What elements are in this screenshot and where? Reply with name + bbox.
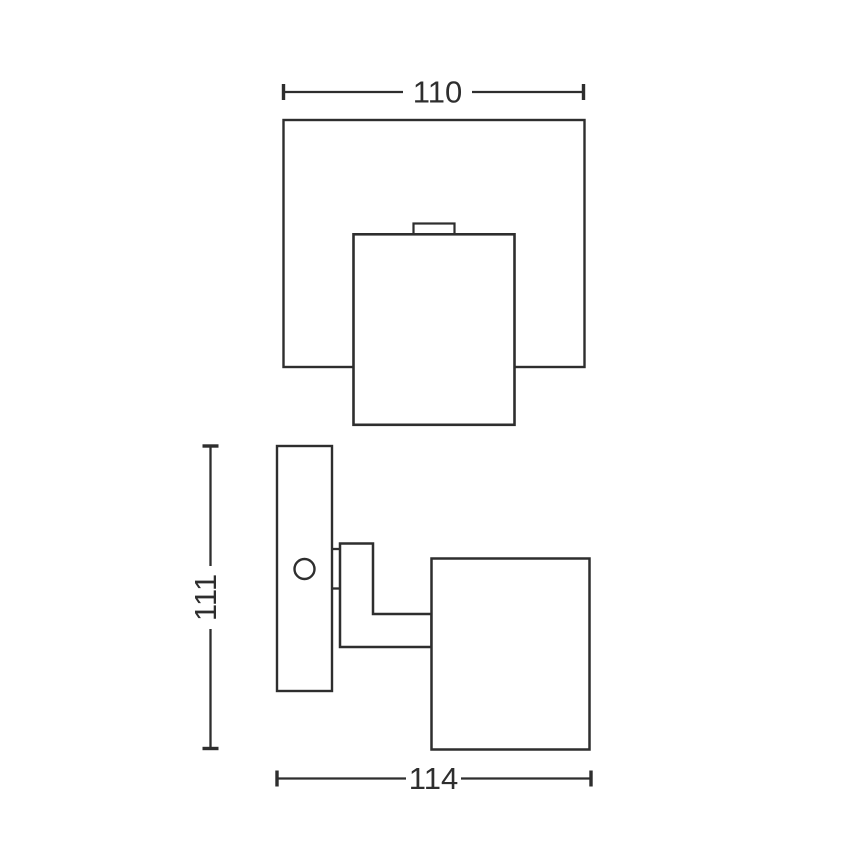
technical-drawing: 110 111 — [0, 0, 868, 868]
dimension-label-depth: 114 — [409, 761, 458, 796]
dimension-label-width: 110 — [413, 75, 462, 110]
top-view: 110 — [284, 75, 585, 425]
side-view-lamp-head — [432, 559, 590, 750]
dimension-label-height: 111 — [188, 574, 223, 621]
dimension-width-110: 110 — [284, 75, 584, 110]
top-view-pivot-tab — [414, 224, 455, 235]
side-view-bracket-arm — [340, 544, 432, 648]
dimension-height-111: 111 — [188, 446, 223, 749]
screw-hole-icon — [295, 559, 315, 579]
top-view-lamp-head — [354, 234, 515, 424]
side-view: 111 114 — [188, 446, 591, 796]
dimension-depth-114: 114 — [277, 761, 591, 796]
drawing-canvas: 110 111 — [0, 0, 868, 868]
